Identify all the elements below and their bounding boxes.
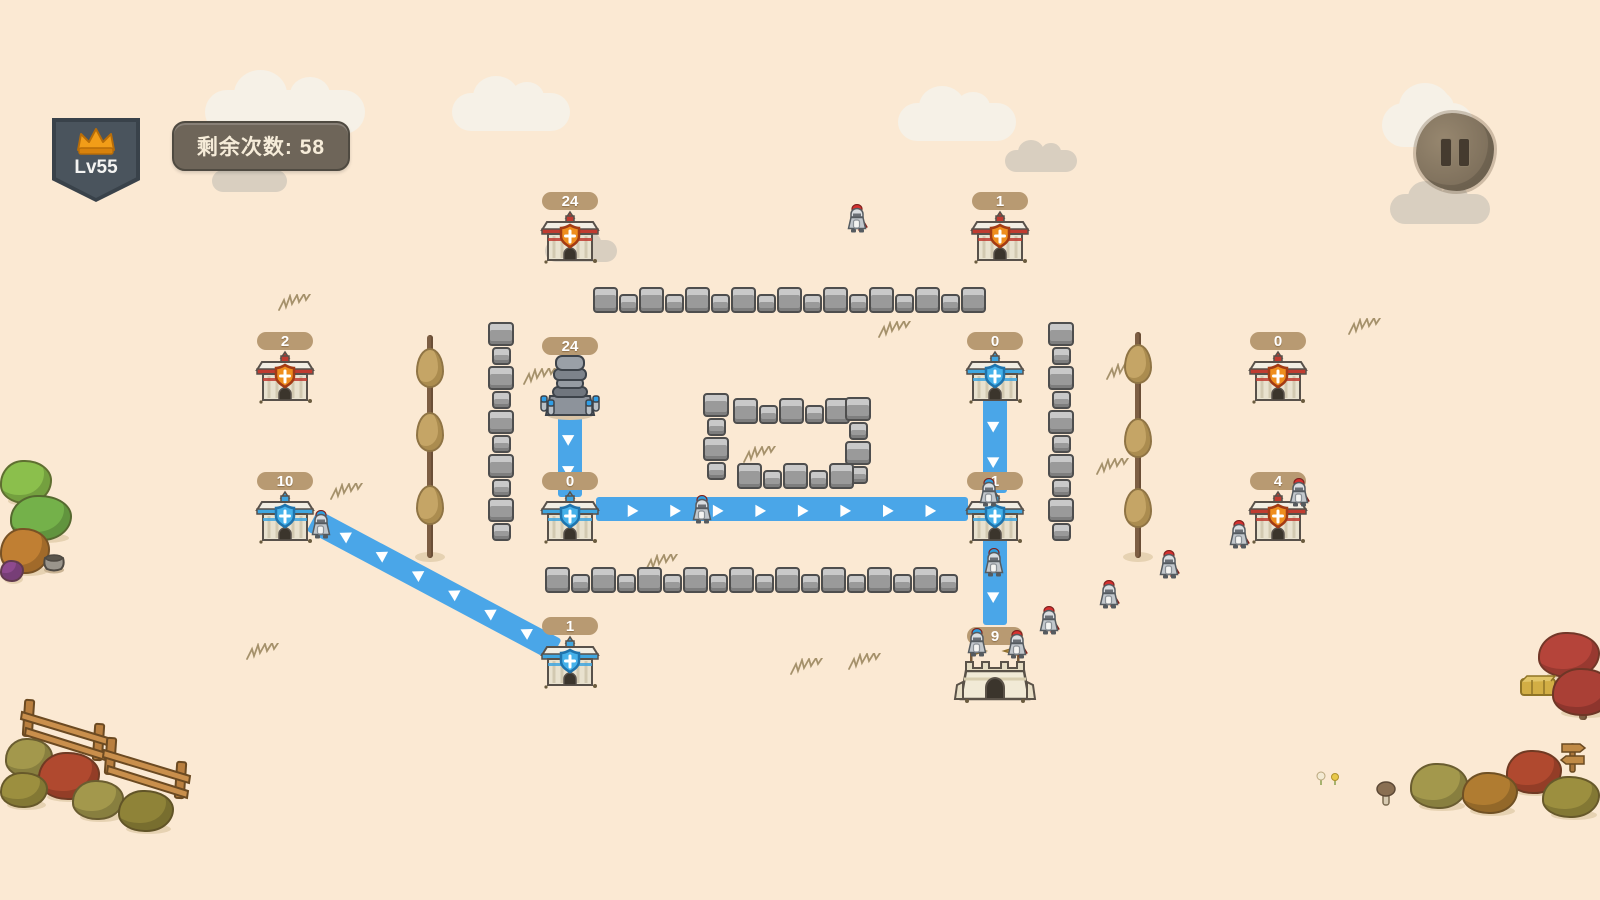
soldier-blue (979, 478, 1001, 513)
stone-wall (593, 283, 985, 313)
path-arrow-icon: ▶ (371, 546, 388, 565)
troop-count-value: 1 (566, 618, 574, 635)
pause-icon (1441, 139, 1469, 166)
tree-foliage (416, 485, 444, 525)
troop-count-badge: 1 (542, 617, 598, 635)
building-barracks-blue[interactable]: 0 (540, 490, 600, 542)
grass-tuft (878, 321, 914, 344)
soldier-blue (311, 510, 333, 545)
tree-foliage (1124, 488, 1152, 528)
stone-wall (487, 322, 515, 546)
building-barracks-blue[interactable]: 0 (965, 350, 1025, 402)
cloud (212, 170, 287, 192)
troop-count-value: 24 (562, 338, 579, 355)
stone-wall (545, 563, 965, 593)
level-label: Lv55 (74, 157, 117, 179)
building-tower-blue[interactable]: 24 (540, 352, 600, 418)
troop-count-value: 0 (991, 333, 999, 350)
stone-wall (733, 394, 837, 424)
crown-icon (74, 126, 118, 156)
path-arrow-icon: ▶ (480, 604, 497, 623)
bush (1542, 776, 1600, 818)
troop-count-badge: 1 (972, 192, 1028, 210)
troop-count-badge: 24 (542, 192, 598, 210)
troop-count-badge: 0 (967, 332, 1023, 350)
troop-count-badge: 10 (257, 472, 313, 490)
soldier-red (1159, 550, 1181, 585)
path-arrow-icon: ▶ (755, 501, 766, 517)
tree-foliage (1124, 344, 1152, 384)
path-arrow-icon: ▶ (883, 501, 894, 517)
cloud (1005, 150, 1077, 172)
soldier-red (1229, 520, 1251, 555)
path-arrow-icon: ▶ (516, 624, 533, 643)
grass-tuft (848, 653, 884, 676)
path-arrow-icon: ▶ (987, 422, 1003, 433)
troop-path: ▶▶▶▶▶▶ (306, 509, 561, 660)
bush (72, 780, 124, 820)
soldier-red (1099, 580, 1121, 615)
remaining-moves-label: 剩余次数: 58 (197, 131, 325, 161)
grass-tuft (1348, 318, 1384, 341)
mushroom (1376, 780, 1396, 812)
troop-count-value: 9 (991, 628, 999, 645)
pot (42, 550, 66, 579)
troop-count-badge: 0 (1250, 332, 1306, 350)
troop-count-badge: 2 (257, 332, 313, 350)
path-arrow-icon: ▶ (628, 501, 639, 517)
troop-path: ▶▶▶▶▶▶▶▶ (596, 497, 968, 521)
bush (1410, 763, 1468, 809)
path-arrow-icon: ▶ (670, 501, 681, 517)
cloud (898, 103, 1016, 141)
bush (0, 772, 48, 808)
soldier-red (1039, 606, 1061, 641)
bush (118, 790, 174, 832)
grass-tuft (330, 483, 366, 506)
pause-button[interactable] (1416, 113, 1494, 191)
path-arrow-icon: ▶ (798, 501, 809, 517)
grass-tuft (246, 643, 282, 666)
troop-count-badge: 0 (542, 472, 598, 490)
game-field: Lv55 剩余次数: 58 ▶▶▶▶▶▶▶▶▶▶▶▶▶▶▶▶▶▶▶▶241224… (0, 0, 1600, 900)
soldier-blue (984, 548, 1006, 583)
soldier-red (1289, 478, 1311, 513)
tree-foliage (416, 412, 444, 452)
path-arrow-icon: ▶ (713, 501, 724, 517)
path-arrow-icon: ▶ (444, 585, 461, 604)
building-barracks-red[interactable]: 2 (255, 350, 315, 402)
soldier-blue (967, 628, 989, 663)
remaining-moves-counter: 剩余次数: 58 (172, 121, 350, 171)
soldier-red (1007, 630, 1029, 665)
path-arrow-icon: ▶ (840, 501, 851, 517)
building-barracks-red[interactable]: 0 (1248, 350, 1308, 402)
flowers (1316, 770, 1342, 791)
troop-count-badge: 24 (542, 337, 598, 355)
soldier-blue (692, 495, 714, 530)
path-arrow-icon: ▶ (987, 457, 1003, 468)
round-tree (1552, 668, 1600, 716)
soldier-red (847, 204, 869, 239)
troop-count-value: 10 (277, 473, 294, 490)
troop-count-value: 1 (996, 193, 1004, 210)
bush (0, 560, 24, 582)
tree-foliage (416, 348, 444, 388)
stone-wall (702, 393, 730, 483)
troop-count-value: 24 (562, 193, 579, 210)
path-arrow-icon: ▶ (407, 566, 424, 585)
bush (1462, 772, 1518, 814)
stone-wall (737, 459, 841, 489)
troop-count-value: 0 (566, 473, 574, 490)
building-barracks-blue[interactable]: 1 (540, 635, 600, 687)
path-arrow-icon: ▶ (562, 435, 578, 446)
troop-count-value: 0 (1274, 333, 1282, 350)
troop-count-value: 4 (1274, 473, 1282, 490)
building-barracks-red[interactable]: 24 (540, 210, 600, 262)
tree-foliage (1124, 418, 1152, 458)
path-arrow-icon: ▶ (335, 527, 352, 546)
grass-tuft (278, 294, 314, 317)
hay (1520, 674, 1556, 701)
path-arrow-icon: ▶ (925, 501, 936, 517)
grass-tuft (1096, 458, 1132, 481)
stone-wall (1047, 322, 1075, 546)
path-arrow-icon: ▶ (987, 592, 1003, 603)
cloud (452, 93, 570, 131)
troop-count-value: 2 (281, 333, 289, 350)
sign (1558, 740, 1588, 779)
grass-tuft (790, 658, 826, 681)
cloud (1390, 194, 1490, 224)
level-badge: Lv55 (52, 118, 140, 202)
building-barracks-blue[interactable]: 10 (255, 490, 315, 542)
building-barracks-red[interactable]: 1 (970, 210, 1030, 262)
